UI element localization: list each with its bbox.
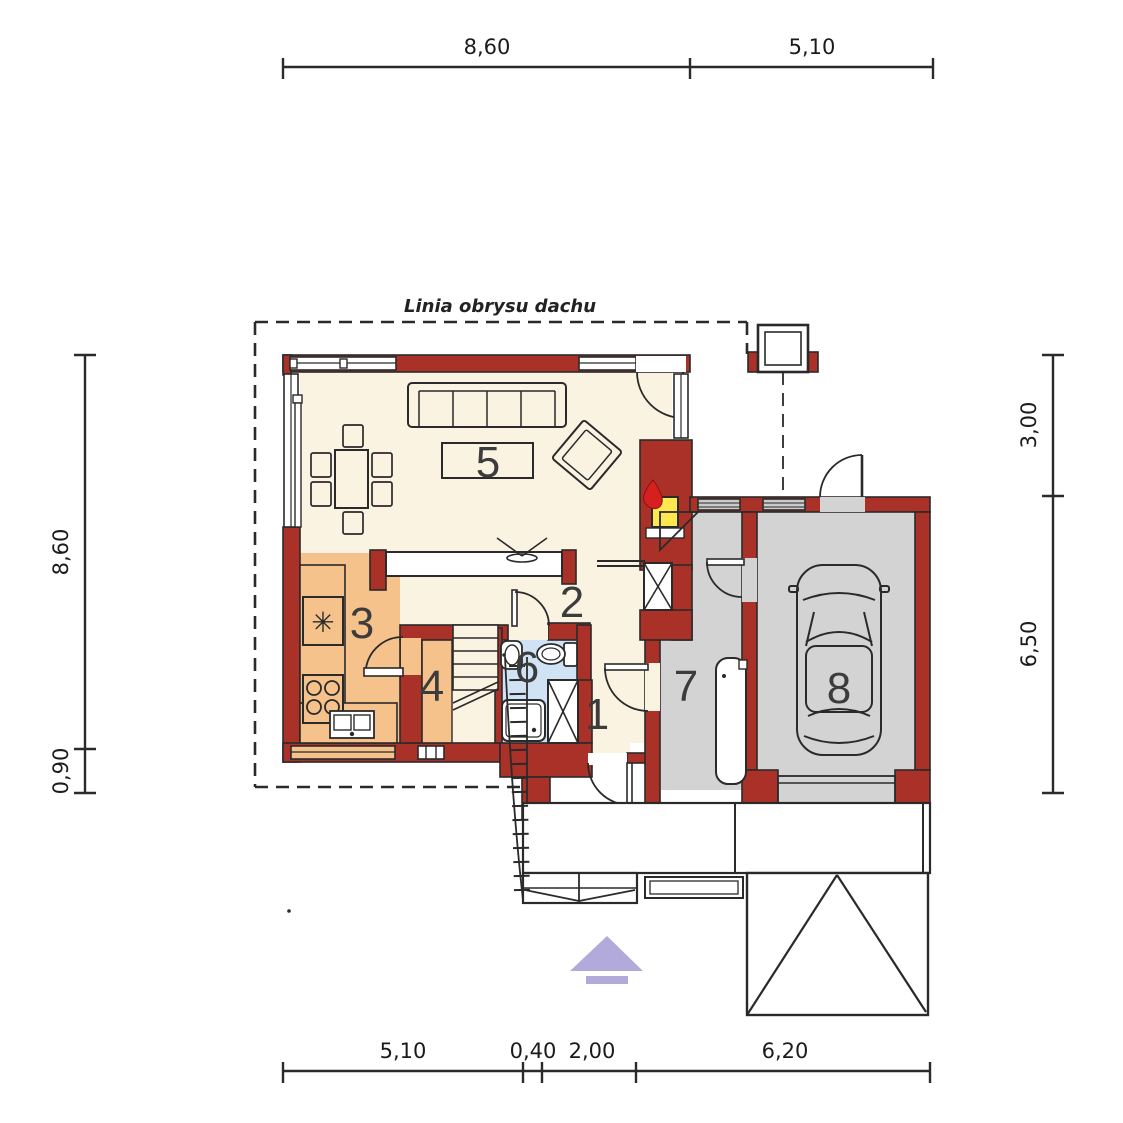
wall-left-lower [283, 527, 300, 762]
dim-right: 3,00 6,50 [1017, 355, 1064, 793]
window-living-west [284, 374, 302, 527]
kitchen-sink [330, 711, 374, 738]
sofa [408, 383, 566, 427]
garage-pier-left [742, 770, 778, 803]
stray-mark [287, 909, 291, 913]
room-label-3: 3 [350, 599, 374, 648]
toilet [537, 643, 577, 666]
floor-plan-page: d="M395,207 C290,192 240,148 190,163 C13… [0, 0, 1123, 1123]
chimney-tab-left [748, 352, 758, 372]
floor-plan-canvas: d="M395,207 C290,192 240,148 190,163 C13… [0, 0, 1123, 1123]
room-label-4: 4 [420, 662, 444, 711]
dim-top-1: 8,60 [464, 35, 511, 59]
dim-left-2: 0,90 [49, 748, 73, 795]
door-front-entrance [588, 753, 632, 805]
dim-left-1: 8,60 [49, 529, 73, 576]
door-garage-side [820, 455, 865, 512]
room-label-6: 6 [515, 643, 539, 692]
driveway-forecourt [747, 873, 928, 1015]
shaft-fireplace [644, 563, 672, 610]
window-garage-north-2 [763, 499, 805, 510]
dim-top-2: 5,10 [789, 35, 836, 59]
wall-hall-north [640, 610, 692, 640]
window-living-north-1 [290, 357, 396, 370]
fridge-snowflake-icon: ✳ [311, 606, 334, 639]
window-living-north-2 [579, 357, 636, 370]
dim-bottom-4: 6,20 [762, 1039, 809, 1063]
tv-wall-cap-left [370, 550, 386, 590]
window-garage-north-1 [698, 499, 740, 510]
water-heater [716, 658, 747, 784]
wall-bath-east [577, 625, 591, 682]
window-pantry-south [418, 746, 444, 759]
room-label-7: 7 [674, 662, 698, 711]
shaft-bathroom [548, 680, 578, 743]
north-arrow-icon [570, 936, 643, 984]
porch-slab [523, 803, 930, 873]
dim-right-1: 3,00 [1017, 402, 1041, 449]
dim-bottom-2: 0,40 [510, 1039, 557, 1063]
wall-garage-east [915, 512, 930, 770]
room-label-8: 8 [827, 664, 851, 713]
chimney-tab-right [808, 352, 818, 372]
dim-top: 8,60 5,10 [283, 35, 933, 79]
doormat-outer [645, 877, 743, 898]
wall-hall-utility [645, 625, 660, 805]
dim-right-2: 6,50 [1017, 621, 1041, 668]
window-living-east [674, 374, 688, 438]
chimney [758, 325, 808, 497]
fireplace-hearth [646, 528, 684, 538]
room-label-2: 2 [560, 578, 584, 627]
wall-bath-south [500, 743, 592, 777]
entry-steps [523, 873, 637, 903]
roof-outline-label: Linia obrysu dachu [404, 296, 596, 317]
dim-left: 8,60 0,90 [49, 355, 96, 794]
room-label-5: 5 [476, 438, 500, 487]
garage-pier-right [895, 770, 930, 803]
window-kitchen-south [291, 746, 395, 759]
dim-bottom-3: 2,00 [569, 1039, 616, 1063]
dim-bottom: 5,10 0,40 2,00 6,20 [283, 1039, 930, 1083]
dim-bottom-1: 5,10 [380, 1039, 427, 1063]
room-label-1: 1 [585, 690, 609, 739]
